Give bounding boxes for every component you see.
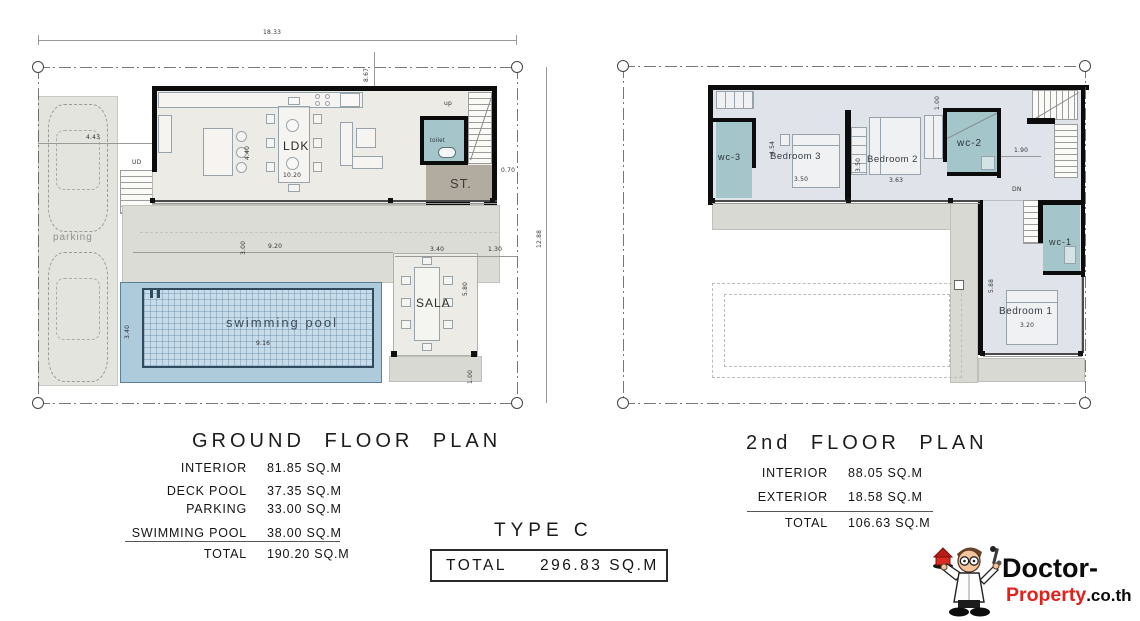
parking-label: parking: [53, 232, 93, 243]
window-track: [712, 203, 980, 204]
grand-total-value: 296.83 SQ.M: [540, 557, 659, 575]
table-total-row: TOTAL 106.63 SQ.M: [678, 516, 930, 530]
wall: [420, 161, 468, 165]
dim-label: 4.54: [769, 141, 776, 155]
wall: [1027, 118, 1055, 124]
dim-label: 5.88: [988, 279, 995, 293]
column-post: [1078, 351, 1083, 356]
wc2-label: wc-2: [957, 138, 982, 149]
column-post: [150, 198, 155, 203]
total-value: 190.20 SQ.M: [267, 547, 349, 561]
void-outline: [724, 294, 950, 367]
up-label: up: [444, 100, 452, 107]
chair: [266, 138, 275, 148]
table-row: INTERIOR 81.85 SQ.M: [97, 461, 342, 475]
chair: [401, 298, 411, 307]
dim-line: [1001, 156, 1041, 157]
grid-bubble: [32, 397, 44, 409]
wall: [1043, 271, 1085, 275]
stool: [236, 131, 247, 142]
row-label: INTERIOR: [97, 461, 247, 475]
row-label: DECK POOL: [97, 484, 247, 498]
column-post: [948, 198, 953, 203]
wall: [978, 200, 983, 355]
chair: [422, 257, 432, 265]
wall: [464, 118, 468, 165]
ground-floor-plan: parking UD toilet up ST. swimming po: [0, 0, 570, 420]
pool-ladder: [150, 289, 153, 298]
table-row: EXTERIOR 18.58 SQ.M: [678, 490, 923, 504]
dim-label: 4.40: [244, 146, 251, 160]
toilet-bowl: [438, 147, 456, 158]
type-label: TYPE C: [494, 520, 593, 542]
grand-total-label: TOTAL: [446, 557, 540, 575]
dim-tick: [38, 35, 39, 45]
dim-line: [395, 256, 517, 257]
window-track: [152, 203, 497, 204]
column-post: [471, 351, 477, 357]
grand-total-box: TOTAL 296.83 SQ.M: [430, 549, 668, 582]
row-label: SWIMMING POOL: [97, 526, 247, 540]
down-label: DN: [1012, 186, 1022, 193]
window-wall: [1082, 277, 1084, 353]
stove-burner: [315, 101, 320, 106]
dim-label: 12.88: [536, 230, 543, 248]
wall: [420, 116, 424, 165]
sink-unit: [158, 115, 172, 153]
wall: [708, 85, 1089, 90]
logo-word-property: Property.co.th: [1006, 584, 1132, 607]
wc1-label: wc-1: [1049, 237, 1072, 247]
dim-line: [38, 40, 517, 41]
dim-label: 3.00: [240, 241, 247, 255]
column-post: [846, 198, 851, 203]
dim-label: 3.50: [794, 176, 808, 183]
storage-label: ST.: [450, 176, 472, 191]
wall: [152, 86, 497, 91]
dim-label: 1.30: [488, 246, 502, 253]
table-total-row: TOTAL 190.20 SQ.M: [97, 547, 349, 561]
wall: [712, 118, 754, 122]
row-value: 33.00 SQ.M: [267, 502, 342, 516]
window-wall: [152, 200, 497, 202]
total-value: 106.63 SQ.M: [848, 516, 930, 530]
dim-label: 8.67: [363, 68, 370, 82]
dim-line: [38, 143, 152, 144]
entry-label: UD: [132, 159, 141, 166]
centerline: [623, 403, 1085, 404]
table-row: INTERIOR 88.05 SQ.M: [678, 466, 923, 480]
window-wall: [983, 353, 1082, 355]
row-value: 18.58 SQ.M: [848, 490, 923, 504]
shower-tray: [981, 156, 995, 170]
wall: [152, 86, 157, 172]
grid-bubble: [1079, 397, 1091, 409]
wall: [1038, 205, 1043, 243]
chair: [266, 162, 275, 172]
dim-label: 3.63: [889, 177, 903, 184]
chair: [313, 138, 322, 148]
grid-bubble: [511, 397, 523, 409]
dim-label: 3.40: [430, 246, 444, 253]
kitchen-counter: [158, 92, 363, 108]
logo-word-property-red: Property: [1006, 584, 1086, 606]
table-row: SWIMMING POOL 38.00 SQ.M: [97, 526, 342, 540]
void-marker: [954, 280, 964, 290]
chair: [288, 184, 300, 192]
table-setting: [286, 119, 299, 132]
ldk-label: LDK: [283, 139, 309, 153]
dim-label: 1.00: [934, 96, 941, 110]
bedroom2-label: Bedroom 2: [867, 154, 918, 165]
column-post: [710, 198, 715, 203]
row-label: INTERIOR: [678, 466, 828, 480]
chair: [401, 320, 411, 329]
dim-tick: [516, 35, 517, 45]
dim-label: 1.00: [467, 370, 474, 384]
chair: [313, 162, 322, 172]
wall: [492, 86, 497, 205]
wc1-fixture: [1064, 246, 1076, 264]
chair: [313, 114, 322, 124]
wardrobe: [924, 115, 944, 159]
row-label: PARKING: [97, 502, 247, 516]
sala-label: SALA: [416, 296, 451, 310]
column-post: [391, 351, 397, 357]
dim-label: 9.20: [268, 243, 282, 250]
dim-label: 0.70: [501, 167, 515, 174]
chair: [401, 276, 411, 285]
column-post: [388, 198, 393, 203]
table-row: PARKING 33.00 SQ.M: [97, 502, 342, 516]
nightstand: [780, 134, 790, 146]
wardrobe: [716, 91, 754, 109]
kitchen-island: [203, 128, 233, 176]
doctor-property-logo: Doctor- Property.co.th: [932, 540, 1140, 618]
table-divider: [125, 541, 340, 542]
dim-line: [133, 252, 393, 253]
dim-label: 3.40: [124, 325, 131, 339]
stairs-down: [1054, 124, 1078, 178]
row-value: 38.00 SQ.M: [267, 526, 342, 540]
dim-label: 5.80: [462, 282, 469, 296]
balcony-deck: [978, 358, 1085, 382]
wall: [1038, 200, 1085, 205]
row-label: EXTERIOR: [678, 490, 828, 504]
dim-label: 4.43: [86, 134, 100, 141]
bed-pillow-line: [792, 145, 840, 146]
logo-word-doctor: Doctor-: [1002, 553, 1098, 584]
wall: [420, 116, 468, 120]
table-setting: [286, 157, 299, 170]
total-label: TOTAL: [678, 516, 828, 530]
centerline: [38, 67, 39, 403]
grid-bubble: [617, 60, 629, 72]
wall: [943, 108, 1001, 112]
column-post: [980, 351, 985, 356]
wall: [997, 108, 1001, 178]
dim-label: 3.50: [855, 158, 862, 172]
bedroom1-label: Bedroom 1: [999, 306, 1052, 317]
wall: [752, 118, 756, 168]
wc3-label: wc-3: [718, 152, 741, 162]
grid-bubble: [1079, 60, 1091, 72]
deck-guide: [140, 232, 497, 233]
chair: [443, 276, 453, 285]
bed: [869, 117, 921, 175]
grid-bubble: [617, 397, 629, 409]
stove-burner: [315, 94, 320, 99]
bed: [1006, 290, 1058, 345]
column-post: [490, 198, 495, 203]
chair: [288, 97, 300, 105]
pool-label: swimming pool: [226, 315, 338, 330]
car-cabin: [56, 278, 100, 340]
stove-burner: [325, 101, 330, 106]
sofa: [352, 156, 383, 169]
pool-ladder: [157, 289, 160, 298]
bedroom3-label: Bedroom 3: [770, 151, 821, 162]
dim-label: 9.16: [256, 340, 270, 347]
dim-label: 1.90: [1014, 147, 1028, 154]
stove-hood: [340, 93, 360, 107]
stove-burner: [325, 94, 330, 99]
second-floor-title: 2nd FLOOR PLAN: [746, 432, 988, 455]
wall: [708, 85, 713, 205]
bed-pillow-line: [880, 117, 881, 175]
dim-label: 3.20: [1020, 322, 1034, 329]
table-divider: [747, 511, 933, 512]
stool: [236, 162, 247, 173]
table-row: DECK POOL 37.35 SQ.M: [97, 484, 342, 498]
toilet-label: toilet: [430, 138, 445, 144]
dim-label: 10.20: [283, 172, 301, 179]
centerline: [623, 66, 624, 403]
grid-bubble: [511, 61, 523, 73]
centerline: [517, 67, 518, 403]
grid-bubble: [32, 61, 44, 73]
logo-suffix: .co.th: [1086, 586, 1131, 605]
balcony-deck: [712, 203, 978, 230]
centerline: [38, 67, 517, 68]
row-value: 37.35 SQ.M: [267, 484, 342, 498]
dim-label: 18.33: [263, 29, 281, 36]
chair: [443, 320, 453, 329]
row-value: 81.85 SQ.M: [267, 461, 342, 475]
total-label: TOTAL: [97, 547, 247, 561]
centerline: [1085, 66, 1086, 403]
second-floor-plan: wc-3 Bedroom 3 Bedroom 2 wc-2 DN wc-1 Be…: [570, 0, 1140, 420]
centerline: [38, 403, 517, 404]
bed-pillow-line: [1006, 302, 1058, 303]
centerline: [623, 66, 1085, 67]
wall: [943, 112, 947, 162]
dim-line: [546, 67, 547, 403]
window-track: [983, 356, 1082, 357]
doctor-mascot-icon: [932, 540, 1008, 618]
chair: [266, 114, 275, 124]
chair: [422, 343, 432, 351]
dim-tick: [374, 52, 375, 86]
ground-floor-title: GROUND FLOOR PLAN: [192, 430, 501, 453]
row-value: 88.05 SQ.M: [848, 466, 923, 480]
wall: [947, 172, 1001, 176]
coffee-table: [356, 128, 376, 148]
